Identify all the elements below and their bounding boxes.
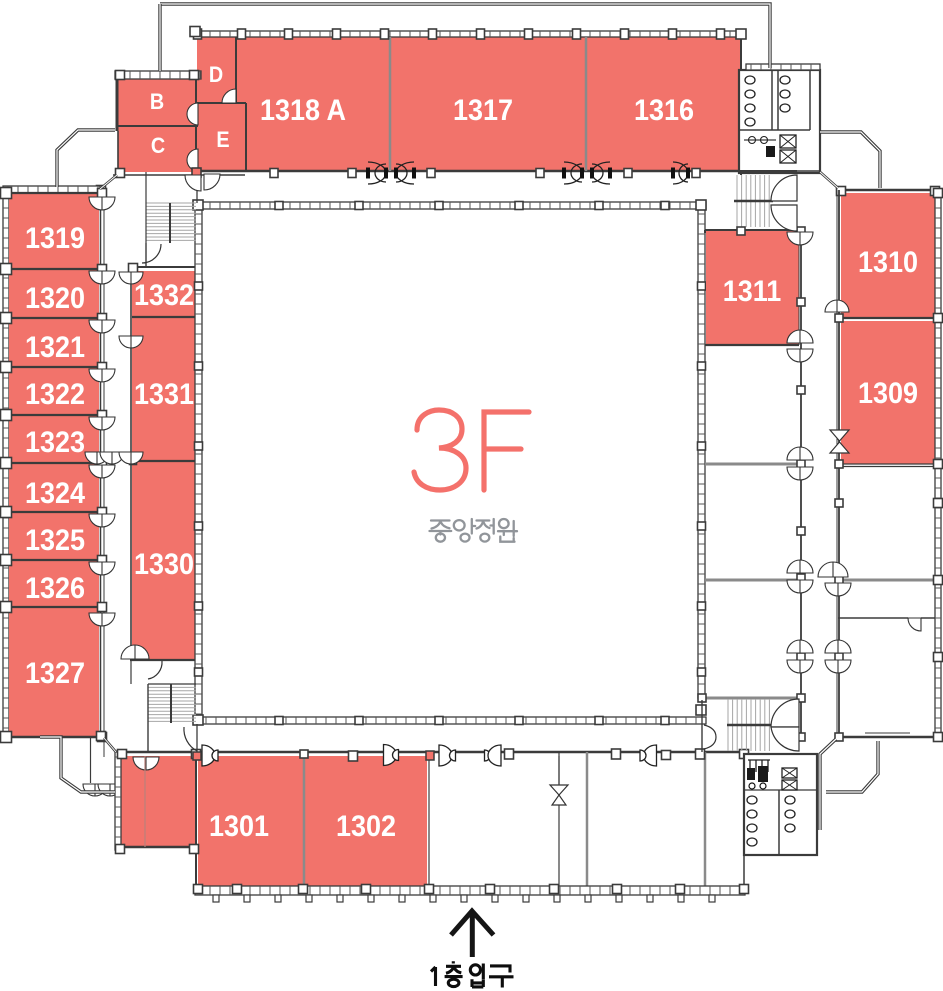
svg-text:E: E [216,128,229,152]
svg-text:C: C [151,134,165,158]
svg-text:1310: 1310 [858,246,918,280]
svg-text:1316: 1316 [634,94,694,128]
svg-text:1332: 1332 [134,279,194,313]
svg-text:B: B [150,90,164,114]
svg-text:1323: 1323 [25,426,85,460]
svg-text:1325: 1325 [25,524,85,558]
svg-text:1327: 1327 [25,657,85,691]
svg-text:1301: 1301 [209,810,269,844]
svg-text:1309: 1309 [858,377,918,411]
svg-text:1331: 1331 [134,378,194,412]
svg-text:1324: 1324 [25,477,85,511]
svg-text:1302: 1302 [336,810,396,844]
svg-text:1318 A: 1318 A [260,94,346,128]
svg-text:1322: 1322 [25,378,85,412]
svg-text:D: D [209,63,223,87]
svg-text:1320: 1320 [25,282,85,316]
svg-text:1317: 1317 [453,94,513,128]
svg-text:1326: 1326 [25,572,85,606]
svg-text:1330: 1330 [134,548,194,582]
svg-text:1321: 1321 [25,331,85,365]
svg-text:1311: 1311 [723,275,782,309]
svg-text:1319: 1319 [25,222,85,256]
